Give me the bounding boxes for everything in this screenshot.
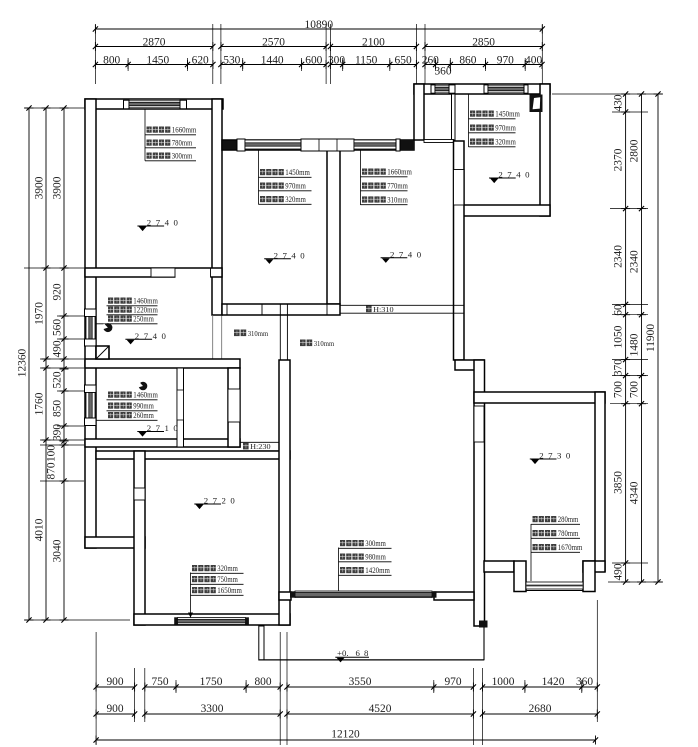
svg-text:0: 0 [525, 170, 530, 180]
svg-text:780mm: 780mm [172, 137, 193, 147]
svg-text:620: 620 [192, 55, 209, 67]
svg-text:4520: 4520 [369, 703, 392, 715]
svg-text:7: 7 [144, 331, 149, 341]
svg-text:4: 4 [153, 331, 158, 341]
svg-text:320mm: 320mm [217, 563, 238, 573]
svg-text:300mm: 300mm [172, 150, 193, 160]
svg-text:920: 920 [52, 283, 64, 300]
svg-text:7: 7 [507, 170, 512, 180]
svg-text:2800: 2800 [629, 139, 641, 162]
svg-text:700: 700 [629, 381, 641, 398]
svg-text:2: 2 [147, 423, 151, 433]
svg-text:430: 430 [613, 94, 625, 111]
svg-text:10890: 10890 [305, 19, 334, 31]
svg-text:750mm: 750mm [217, 574, 238, 584]
svg-text:1750: 1750 [200, 676, 223, 688]
svg-text:520: 520 [52, 371, 64, 388]
svg-text:1760: 1760 [34, 392, 46, 415]
svg-text:7: 7 [156, 423, 161, 433]
svg-text:780mm: 780mm [558, 528, 579, 538]
svg-text:1420: 1420 [542, 676, 565, 688]
svg-text:3300: 3300 [201, 703, 224, 715]
svg-text:3550: 3550 [349, 676, 372, 688]
svg-text:2100: 2100 [362, 37, 385, 49]
svg-text:970: 970 [444, 676, 461, 688]
svg-text:1150: 1150 [355, 55, 378, 67]
svg-text:980mm: 980mm [365, 551, 386, 561]
svg-text:260mm: 260mm [133, 410, 154, 420]
svg-text:0: 0 [230, 496, 235, 506]
svg-text:970: 970 [497, 55, 514, 67]
svg-text:100: 100 [46, 445, 58, 462]
svg-text:1450mm: 1450mm [285, 167, 310, 177]
svg-text:560: 560 [52, 319, 64, 336]
svg-text:990mm: 990mm [133, 400, 154, 410]
svg-text:6: 6 [356, 648, 361, 658]
svg-text:850: 850 [52, 400, 64, 417]
svg-text:860: 860 [459, 55, 476, 67]
svg-text:0: 0 [173, 423, 178, 433]
svg-text:12360: 12360 [17, 348, 29, 377]
svg-text:7: 7 [156, 218, 161, 228]
svg-text:H:310: H:310 [373, 305, 394, 314]
svg-text:900: 900 [106, 676, 123, 688]
svg-text:2: 2 [498, 170, 502, 180]
svg-text:370: 370 [613, 359, 625, 376]
svg-text:310mm: 310mm [314, 339, 335, 348]
svg-text:4: 4 [516, 170, 521, 180]
svg-text:280mm: 280mm [558, 514, 579, 524]
svg-text:310mm: 310mm [248, 329, 269, 338]
svg-text:770mm: 770mm [387, 180, 408, 190]
svg-text:+0.: +0. [337, 648, 349, 658]
svg-text:0: 0 [417, 250, 422, 260]
svg-text:1440: 1440 [261, 55, 284, 67]
svg-text:1000: 1000 [492, 676, 515, 688]
svg-text:H:230: H:230 [250, 442, 271, 451]
svg-text:1450: 1450 [146, 55, 169, 67]
svg-text:2680: 2680 [529, 703, 552, 715]
svg-text:970mm: 970mm [285, 180, 306, 190]
svg-text:2: 2 [135, 331, 139, 341]
svg-text:4: 4 [408, 250, 413, 260]
svg-text:2: 2 [390, 250, 394, 260]
svg-text:970mm: 970mm [495, 122, 516, 132]
svg-text:0: 0 [566, 451, 571, 461]
svg-text:1420mm: 1420mm [365, 565, 390, 575]
svg-text:7: 7 [283, 251, 288, 261]
svg-text:3: 3 [557, 451, 562, 461]
svg-text:1970: 1970 [34, 302, 46, 325]
svg-text:2340: 2340 [613, 245, 625, 268]
svg-text:12120: 12120 [331, 729, 360, 741]
svg-text:1660mm: 1660mm [172, 124, 197, 134]
svg-text:7: 7 [213, 496, 218, 506]
svg-text:490: 490 [52, 340, 64, 357]
svg-text:2: 2 [539, 451, 543, 461]
svg-text:750: 750 [151, 676, 168, 688]
svg-text:1660mm: 1660mm [387, 166, 412, 176]
svg-text:0: 0 [300, 251, 305, 261]
svg-text:0: 0 [162, 331, 167, 341]
svg-text:0: 0 [174, 218, 179, 228]
svg-text:360: 360 [576, 676, 593, 688]
svg-text:4: 4 [291, 251, 296, 261]
svg-text:600: 600 [305, 55, 322, 67]
svg-text:1050: 1050 [613, 325, 625, 348]
svg-text:650: 650 [395, 55, 412, 67]
svg-text:400: 400 [525, 55, 542, 67]
svg-text:7: 7 [399, 250, 404, 260]
svg-text:1460mm: 1460mm [133, 389, 158, 399]
svg-text:300mm: 300mm [365, 538, 386, 548]
svg-text:250mm: 250mm [133, 313, 154, 323]
svg-text:2870: 2870 [143, 37, 166, 49]
svg-text:2: 2 [274, 251, 278, 261]
svg-text:11900: 11900 [645, 324, 657, 352]
svg-text:490: 490 [613, 563, 625, 580]
svg-text:60: 60 [613, 304, 625, 316]
svg-text:2340: 2340 [629, 250, 641, 273]
svg-text:320mm: 320mm [495, 136, 516, 146]
svg-text:1480: 1480 [629, 333, 641, 356]
svg-text:800: 800 [254, 676, 271, 688]
svg-text:3900: 3900 [34, 176, 46, 199]
svg-text:2: 2 [147, 218, 151, 228]
svg-text:2: 2 [204, 496, 208, 506]
svg-text:8: 8 [364, 648, 369, 658]
svg-text:3850: 3850 [613, 471, 625, 494]
svg-text:900: 900 [106, 703, 123, 715]
svg-text:310mm: 310mm [387, 194, 408, 204]
svg-text:870: 870 [46, 462, 58, 479]
svg-text:320mm: 320mm [285, 194, 306, 204]
svg-text:3040: 3040 [52, 539, 64, 562]
svg-text:700: 700 [613, 381, 625, 398]
svg-text:800: 800 [103, 55, 120, 67]
svg-text:1670mm: 1670mm [558, 542, 583, 552]
svg-text:7: 7 [548, 451, 553, 461]
svg-text:4340: 4340 [629, 481, 641, 504]
svg-text:2: 2 [222, 496, 226, 506]
svg-text:2850: 2850 [472, 37, 495, 49]
svg-text:1450mm: 1450mm [495, 108, 520, 118]
svg-text:2570: 2570 [262, 37, 285, 49]
svg-text:2370: 2370 [613, 148, 625, 171]
svg-text:530: 530 [223, 55, 240, 67]
svg-text:4010: 4010 [34, 518, 46, 541]
svg-text:1650mm: 1650mm [217, 585, 242, 595]
svg-text:360: 360 [434, 66, 451, 78]
svg-text:1: 1 [165, 423, 169, 433]
svg-text:3900: 3900 [52, 176, 64, 199]
svg-text:4: 4 [165, 218, 170, 228]
